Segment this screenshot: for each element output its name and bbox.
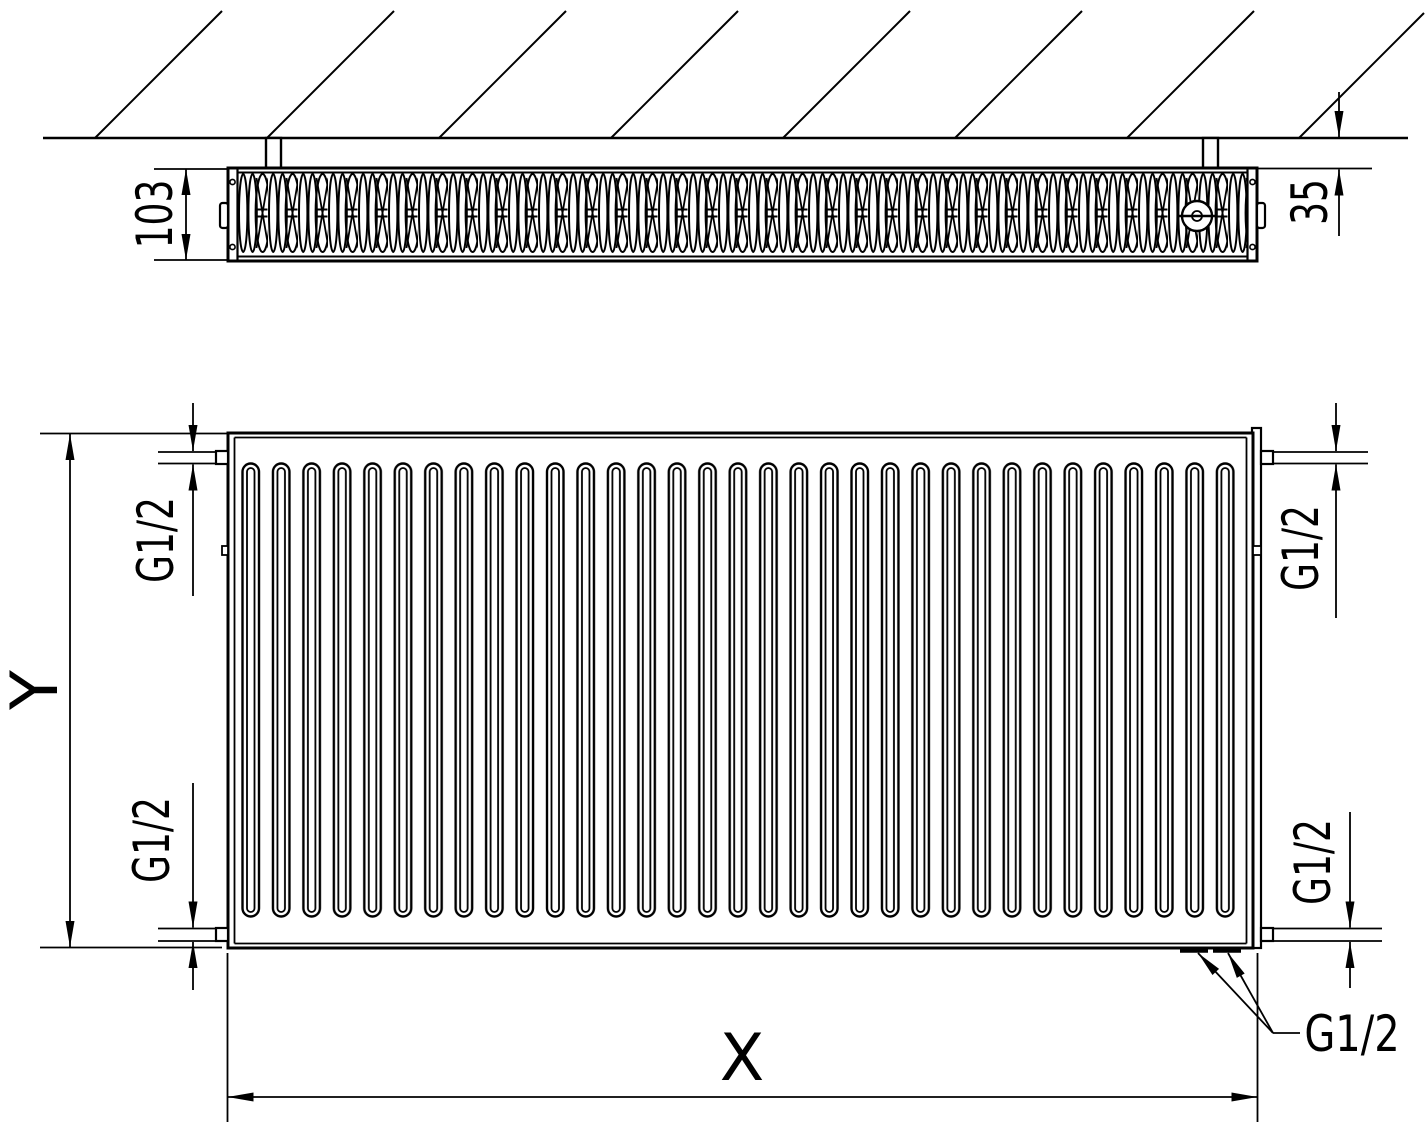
callout-thread-bottom: G1/2 <box>1198 953 1400 1063</box>
dimension-thread-bottom-left: G1/2 <box>124 783 216 990</box>
side-tab-left <box>220 203 228 228</box>
radiator-front-view <box>216 428 1273 951</box>
thread-label-bottom-right: G1/2 <box>1285 819 1342 905</box>
wall-hatching <box>95 11 1424 138</box>
screw-bottom-right <box>1250 244 1255 249</box>
bracket-right <box>1203 138 1218 168</box>
bracket-left <box>266 138 281 168</box>
connection-stub-top-left <box>216 451 228 464</box>
dimension-thread-top-right: G1/2 <box>1273 403 1368 618</box>
dimension-thread-bottom-right: G1/2 <box>1273 812 1382 988</box>
front-grooves <box>241 462 1246 918</box>
dimension-thread-top-left: G1/2 <box>128 403 216 596</box>
weld-tab-right <box>1253 546 1261 555</box>
dimension-depth: 103 <box>127 169 228 260</box>
mounting-brackets <box>266 138 1218 168</box>
weld-tab-left <box>222 546 228 555</box>
dimension-width: X <box>228 953 1258 1122</box>
dimension-wall-clearance: 35 <box>1257 92 1372 236</box>
width-label: X <box>720 1021 765 1096</box>
thread-label-top-right: G1/2 <box>1273 505 1330 591</box>
radiator-dimension-drawing: 103 35 Y X <box>0 0 1425 1131</box>
connection-stub-top-right <box>1261 451 1273 464</box>
depth-label: 103 <box>127 180 184 249</box>
thread-label-top-left: G1/2 <box>128 497 185 583</box>
top-view-fins <box>238 172 1247 254</box>
thread-label-bottom-left: G1/2 <box>124 797 181 883</box>
connection-stub-bottom-left <box>216 928 228 941</box>
thread-callout-label: G1/2 <box>1304 1005 1399 1064</box>
wall-clearance-label: 35 <box>1282 179 1339 225</box>
side-tab-right <box>1257 203 1265 228</box>
technical-drawing-page: 103 35 Y X <box>0 0 1425 1131</box>
radiator-top-view <box>220 168 1265 261</box>
screw-bottom-left <box>230 244 235 249</box>
wall-section <box>43 11 1424 138</box>
connection-stub-bottom-right <box>1261 928 1273 941</box>
screw-top-right <box>1250 179 1255 184</box>
screw-top-left <box>230 179 235 184</box>
height-label: Y <box>0 670 73 711</box>
